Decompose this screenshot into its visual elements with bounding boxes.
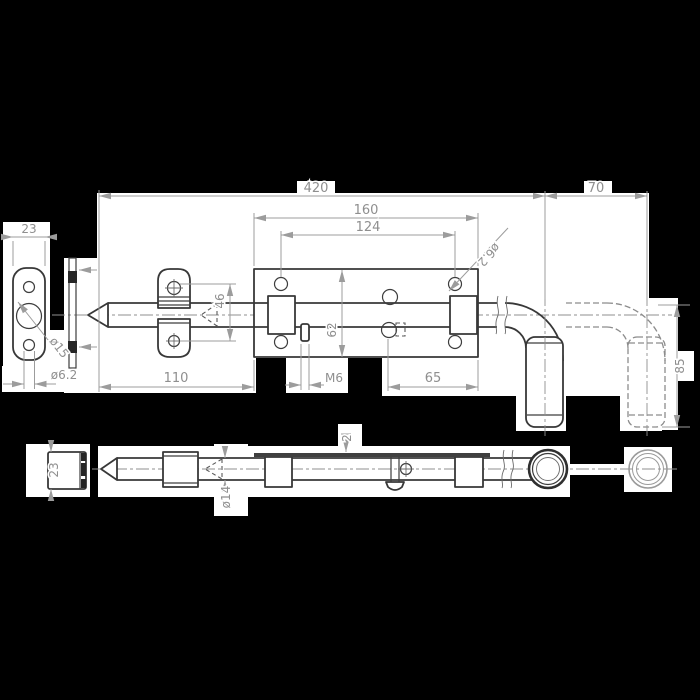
dim-plate-length: 160	[354, 203, 379, 218]
guide-block	[450, 296, 477, 334]
dim-hole-spacing: 124	[356, 220, 381, 235]
square-end-view: 23	[47, 444, 86, 497]
guide-block-side	[455, 457, 483, 487]
dim-edge-distance: 65	[425, 371, 442, 386]
dim-handle-travel: 70	[588, 181, 605, 196]
staple-side	[163, 452, 198, 487]
dim-handle-drop: 85	[673, 358, 687, 373]
dim-staple-offset: 46	[213, 293, 227, 308]
dim-total-length: 420	[304, 181, 329, 196]
locking-screw	[301, 324, 309, 341]
dim-square-size: 23	[47, 462, 61, 477]
dim-plate-thickness: 2	[340, 434, 354, 442]
technical-drawing: 420 70 160 124 ø6.2 46 62 110 65 M6 85	[0, 0, 700, 700]
dim-tip-length: 110	[164, 371, 189, 386]
grip-end-rings	[529, 450, 567, 488]
dim-plate-width: 62	[325, 322, 339, 337]
dim-keeper-hole: ø6.2	[51, 368, 77, 382]
dim-keeper-width: 23	[21, 222, 36, 236]
dim-thread: M6	[325, 371, 343, 385]
guide-block-side	[265, 457, 292, 487]
dim-rod-diameter: ø14	[219, 486, 233, 509]
guide-block	[268, 296, 295, 334]
plate-edge	[254, 453, 490, 457]
